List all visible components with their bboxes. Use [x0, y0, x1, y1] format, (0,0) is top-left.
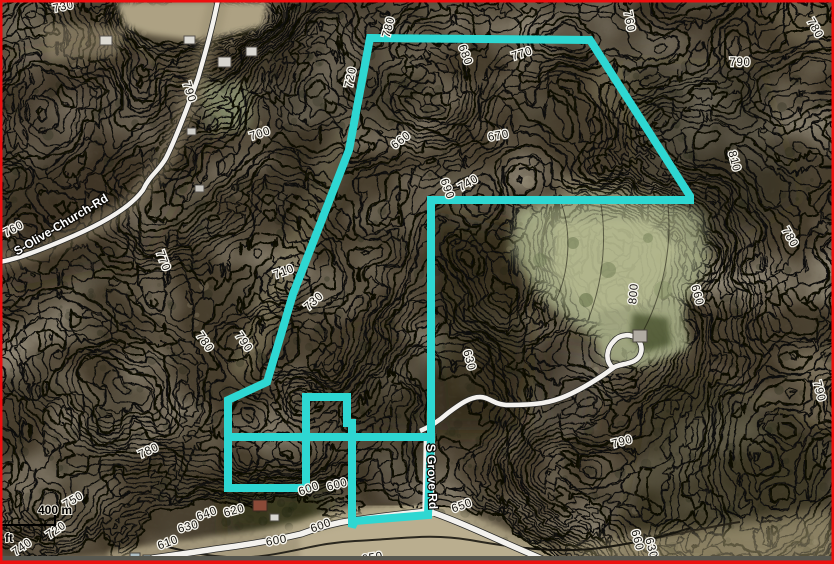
- svg-text:S Grove Rd: S Grove Rd: [424, 444, 440, 510]
- svg-text:790: 790: [730, 57, 751, 69]
- svg-text:800: 800: [627, 283, 641, 305]
- svg-text:ft: ft: [5, 531, 13, 545]
- svg-text:400 m: 400 m: [38, 503, 72, 517]
